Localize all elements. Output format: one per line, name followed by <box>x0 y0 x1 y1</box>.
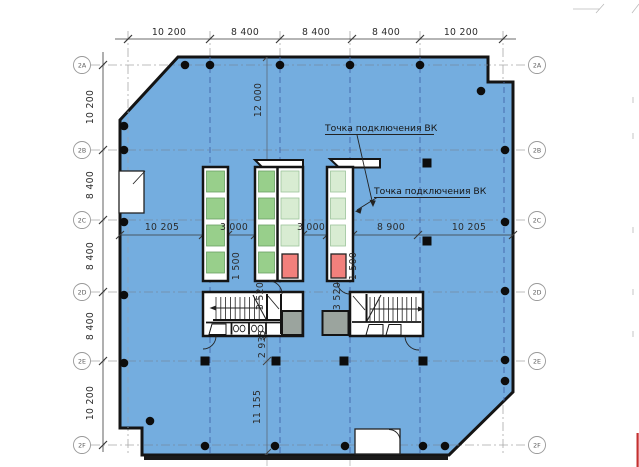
svg-text:2E: 2E <box>533 358 541 365</box>
svg-text:2E: 2E <box>78 358 86 365</box>
dim-v-1500-right: 1 500 <box>348 252 359 280</box>
column-dot <box>419 442 428 451</box>
dim-v-12000: 12 000 <box>253 83 264 117</box>
column-square <box>340 357 349 366</box>
upper-slab-b <box>255 160 303 281</box>
pale-green-cells <box>331 171 346 246</box>
dim-top-0: 10 200 <box>152 27 186 38</box>
dim-top-4: 10 200 <box>444 27 478 38</box>
column-dot <box>501 287 510 296</box>
column-dot <box>201 442 210 451</box>
column-square <box>423 237 432 246</box>
column-dot <box>276 61 285 70</box>
dim-top-1: 8 400 <box>231 27 259 38</box>
column-dot <box>206 61 215 70</box>
elevator-shaft <box>282 311 303 335</box>
grid-bubble-2a-right: 2A <box>529 57 546 74</box>
dim-top-3: 8 400 <box>372 27 400 38</box>
edge-artifacts <box>573 4 639 467</box>
left-dimension-line: 10 200 8 400 8 400 8 400 10 200 <box>85 52 107 452</box>
grid-bubble-2c-left: 2C <box>74 212 91 229</box>
svg-text:2D: 2D <box>78 289 87 296</box>
dim-left-2: 8 400 <box>85 242 96 270</box>
column-dot <box>346 61 355 70</box>
dim-v-2935: 2 935 <box>257 330 268 358</box>
dim-left-4: 10 200 <box>85 386 96 420</box>
svg-text:2A: 2A <box>533 62 542 69</box>
column-dot <box>120 122 129 131</box>
dim-v-3520-left: 3 520 <box>255 282 266 310</box>
wall-opening-left <box>119 171 145 213</box>
dim-left-1: 8 400 <box>85 171 96 199</box>
grid-bubble-2e-left: 2E <box>74 353 91 370</box>
pale-green-cells <box>281 171 299 246</box>
floor-plan-screenshot: 10 200 8 400 8 400 8 400 10 200 10 200 8… <box>0 0 639 467</box>
column-dot <box>501 377 510 386</box>
wall-opening-bottom <box>355 429 400 454</box>
svg-text:2F: 2F <box>78 442 86 449</box>
column-dot <box>501 218 510 227</box>
column-dot <box>146 417 155 426</box>
column-dot <box>477 87 486 96</box>
svg-text:2B: 2B <box>533 147 541 154</box>
grid-bubble-2d-left: 2D <box>74 284 91 301</box>
svg-text:2C: 2C <box>78 217 87 224</box>
column-dot <box>341 442 350 451</box>
grid-bubble-2a-left: 2A <box>74 57 91 74</box>
grid-bubble-2e-right: 2E <box>529 353 546 370</box>
red-cell <box>282 254 298 278</box>
red-cell <box>331 254 346 278</box>
svg-text:2B: 2B <box>78 147 86 154</box>
column-square <box>423 159 432 168</box>
column-dot <box>441 442 450 451</box>
column-dot <box>416 61 425 70</box>
dim-mid-1: 3 000 <box>220 222 248 233</box>
column-dot <box>120 291 129 300</box>
cropped-dimension-marks <box>573 4 639 13</box>
dim-left-0: 10 200 <box>85 90 96 124</box>
dim-mid-2: 3 000 <box>297 222 325 233</box>
column-dot <box>120 359 129 368</box>
svg-text:2C: 2C <box>533 217 542 224</box>
grid-bubble-2b-left: 2B <box>74 142 91 159</box>
column-dot <box>501 146 510 155</box>
floor-plan-drawing: 10 200 8 400 8 400 8 400 10 200 10 200 8… <box>0 0 639 467</box>
stair-core-left <box>203 292 303 336</box>
wc-stall <box>209 324 226 335</box>
wc-stall <box>386 325 401 336</box>
svg-text:2D: 2D <box>533 289 542 296</box>
grid-bubble-2b-right: 2B <box>529 142 546 159</box>
annotation-text-1: Точка подключения ВК <box>324 123 438 134</box>
column-square <box>419 357 428 366</box>
column-dot <box>271 442 280 451</box>
grid-bubble-2c-right: 2C <box>529 212 546 229</box>
annotation-text-2: Точка подключения ВК <box>373 186 487 197</box>
grid-bubbles-right: 2A 2B 2C 2D 2E 2F <box>529 57 546 454</box>
column-dot <box>501 356 510 365</box>
dim-mid-4: 10 205 <box>452 222 486 233</box>
floor-plate <box>120 57 513 455</box>
column-square <box>272 357 281 366</box>
dim-v-3520-right: 3 520 <box>332 282 343 310</box>
grid-bubble-2d-right: 2D <box>529 284 546 301</box>
dim-left-3: 8 400 <box>85 312 96 340</box>
column-dot <box>181 61 190 70</box>
dim-v-1500-left: 1 500 <box>231 252 242 280</box>
dim-top-2: 8 400 <box>302 27 330 38</box>
svg-text:2F: 2F <box>533 442 541 449</box>
column-square <box>201 357 210 366</box>
dim-mid-0: 10 205 <box>145 222 179 233</box>
column-dot <box>120 146 129 155</box>
grid-bubble-2f-right: 2F <box>529 437 546 454</box>
column-dot <box>120 218 129 227</box>
dim-mid-3: 8 900 <box>377 222 405 233</box>
top-dimension-line: 10 200 8 400 8 400 8 400 10 200 <box>115 27 516 43</box>
wc-stall <box>366 325 383 336</box>
dim-v-11155: 11 155 <box>252 390 263 424</box>
grid-bubble-2f-left: 2F <box>74 437 91 454</box>
elevator-shaft <box>323 311 349 335</box>
svg-text:2A: 2A <box>78 62 87 69</box>
